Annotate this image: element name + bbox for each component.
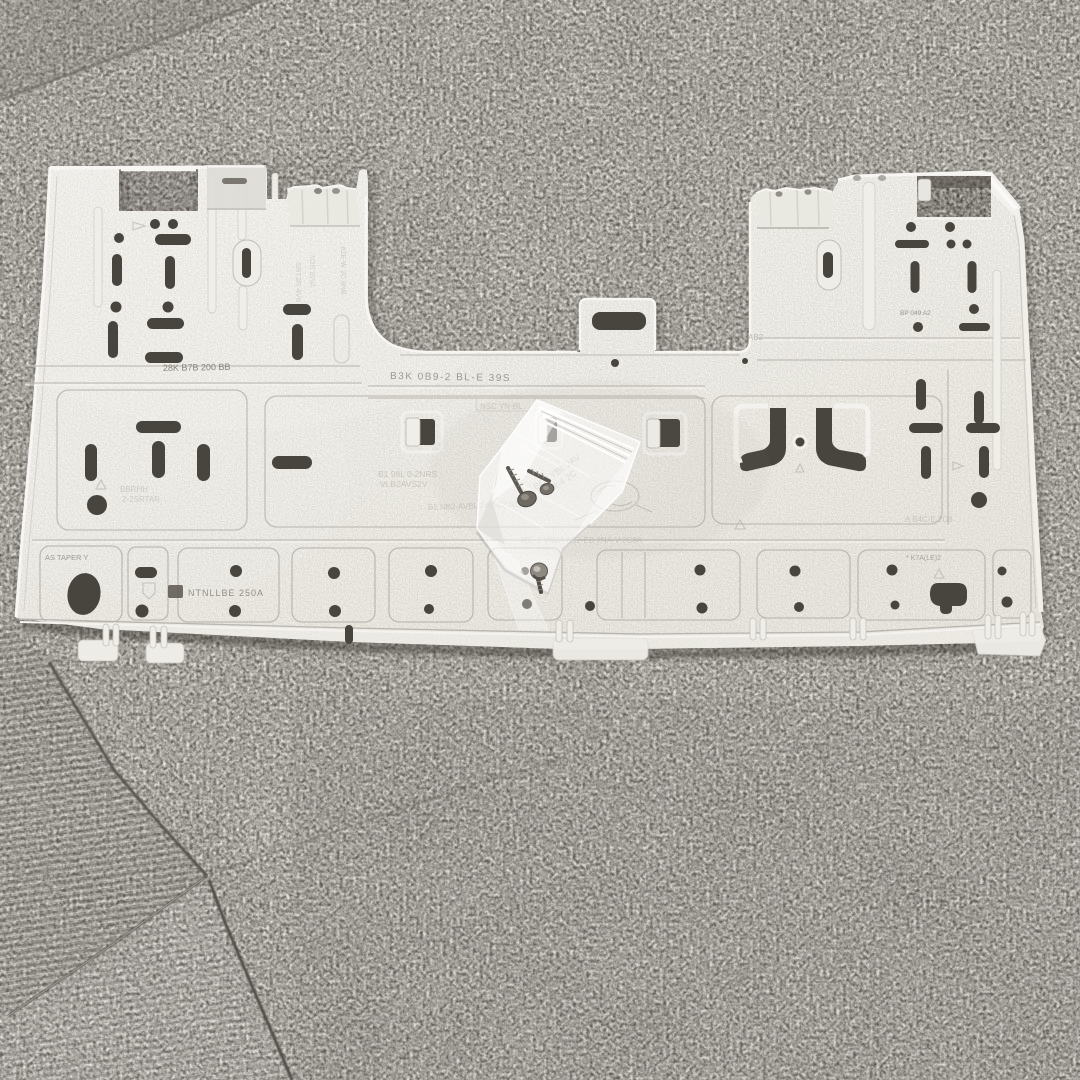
svg-text:BBRHH: BBRHH [120, 485, 148, 494]
svg-text:NTNLLBE 250A: NTNLLBE 250A [188, 588, 264, 598]
svg-text:AB2: AB2 [748, 333, 764, 342]
svg-text:* K7A(LE)2: * K7A(LE)2 [906, 555, 941, 562]
svg-text:B1 98L 0-2NRS: B1 98L 0-2NRS [378, 469, 438, 479]
svg-text:A2E-W 2C 8NB: A2E-W 2C 8NB [339, 246, 346, 295]
svg-text:SRT2R 4V8: SRT2R 4V8 [294, 262, 303, 302]
svg-text:A B4C-E 2C8: A B4C-E 2C8 [905, 515, 953, 524]
svg-text:2-2SRTAR: 2-2SRTAR [122, 495, 160, 504]
svg-text:AS TAPER Y: AS TAPER Y [45, 553, 88, 562]
svg-text:N2B 8WA: N2B 8WA [308, 255, 317, 288]
svg-text:BP 049 A2: BP 049 A2 [900, 310, 931, 317]
svg-text:28K B7B 200 BB: 28K B7B 200 BB [163, 362, 231, 373]
svg-text:VLB2AVS2V: VLB2AVS2V [380, 479, 428, 489]
svg-text:B3K 0B9-2 BL-E 39S: B3K 0B9-2 BL-E 39S [390, 371, 511, 384]
